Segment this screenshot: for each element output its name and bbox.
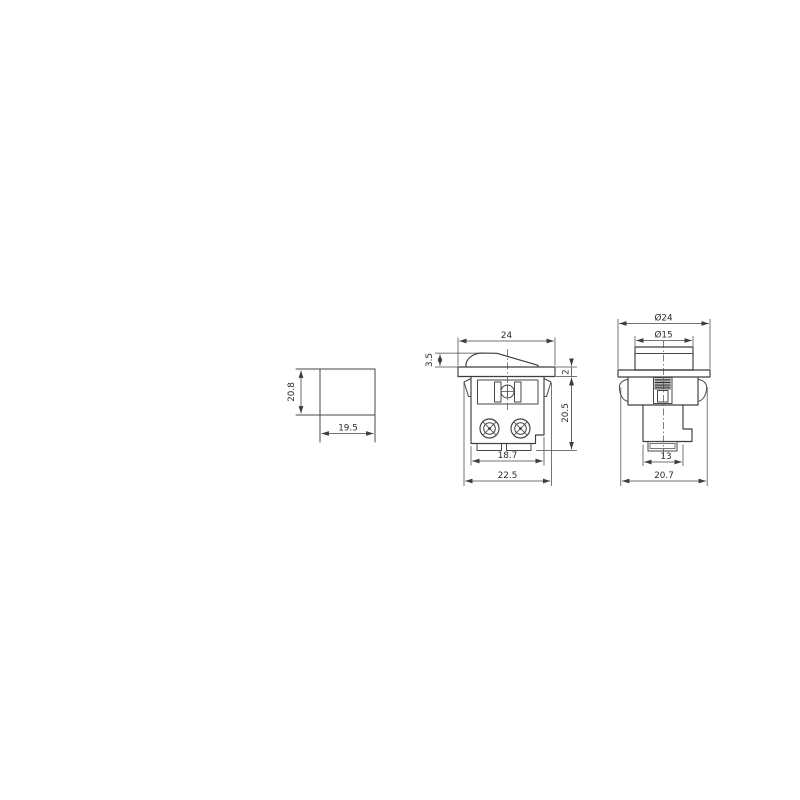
dim-label-body-depth: 20.5 — [561, 403, 571, 423]
drawing-sheet: 20.8 19.5 — [0, 0, 800, 800]
side-view: Ø24 Ø15 13 20.7 — [618, 313, 710, 487]
dim-label-rocker-diameter: Ø15 — [654, 330, 672, 341]
side-flange — [618, 370, 710, 377]
front-right-slot — [515, 382, 522, 402]
dim-body-depth: 20.5 — [536, 378, 577, 450]
terminal-screw-left — [480, 419, 499, 438]
dim-label-side-overall-width: 20.7 — [654, 471, 674, 481]
front-right-clip — [544, 379, 551, 397]
dim-front-flange-width: 24 — [458, 331, 555, 366]
dim-label-side-terminal-width: 13 — [660, 452, 671, 462]
side-terminal-inner — [650, 444, 675, 449]
front-tab-left — [477, 444, 502, 451]
drawing-content: 20.8 19.5 — [287, 313, 710, 487]
dim-cutout-width: 19.5 — [322, 424, 374, 434]
terminal-screw-right — [511, 419, 530, 438]
dim-rocker-diameter: Ø15 — [635, 330, 693, 347]
side-slot-window — [658, 391, 669, 403]
dim-flange-thickness: 2 — [556, 360, 577, 385]
terminal-screw-left-center — [488, 427, 491, 430]
dim-label-terminal-span: 18.7 — [498, 451, 518, 461]
side-right-clip — [698, 380, 707, 402]
side-lower-body — [643, 405, 692, 442]
dim-ext-flange-diameter — [618, 319, 710, 369]
side-center-slot — [654, 378, 673, 404]
side-terminal — [648, 442, 677, 452]
front-tab-right — [507, 444, 532, 451]
dim-label-cutout-height: 20.8 — [287, 382, 297, 402]
dim-label-cutout-width: 19.5 — [338, 424, 358, 434]
front-left-slot — [495, 382, 502, 402]
dim-label-flange-thickness: 2 — [562, 369, 572, 375]
panel-cutout-outline — [296, 369, 375, 442]
front-left-clip — [464, 379, 471, 397]
front-view: 24 3.5 2 20.5 — [425, 331, 577, 486]
terminal-screw-right-center — [519, 427, 522, 430]
dim-label-flange-width: 24 — [501, 331, 513, 341]
dimension-drawing-canvas: 20.8 19.5 — [0, 0, 800, 800]
rocker-profile — [466, 353, 538, 367]
dim-cutout-height: 20.8 — [287, 371, 301, 414]
dim-label-flange-diameter: Ø24 — [654, 313, 673, 324]
side-upper-body — [628, 378, 698, 406]
dim-label-front-overall-width: 22.5 — [498, 471, 518, 481]
panel-cutout-view: 20.8 19.5 — [287, 369, 375, 442]
side-rocker — [635, 347, 693, 370]
dim-terminal-span: 18.7 — [471, 437, 544, 466]
front-flange — [458, 367, 555, 377]
side-slot-spring-hatch — [655, 379, 671, 389]
dim-label-rocker-height: 3.5 — [425, 353, 435, 367]
dim-ext-flange-width — [458, 338, 555, 366]
